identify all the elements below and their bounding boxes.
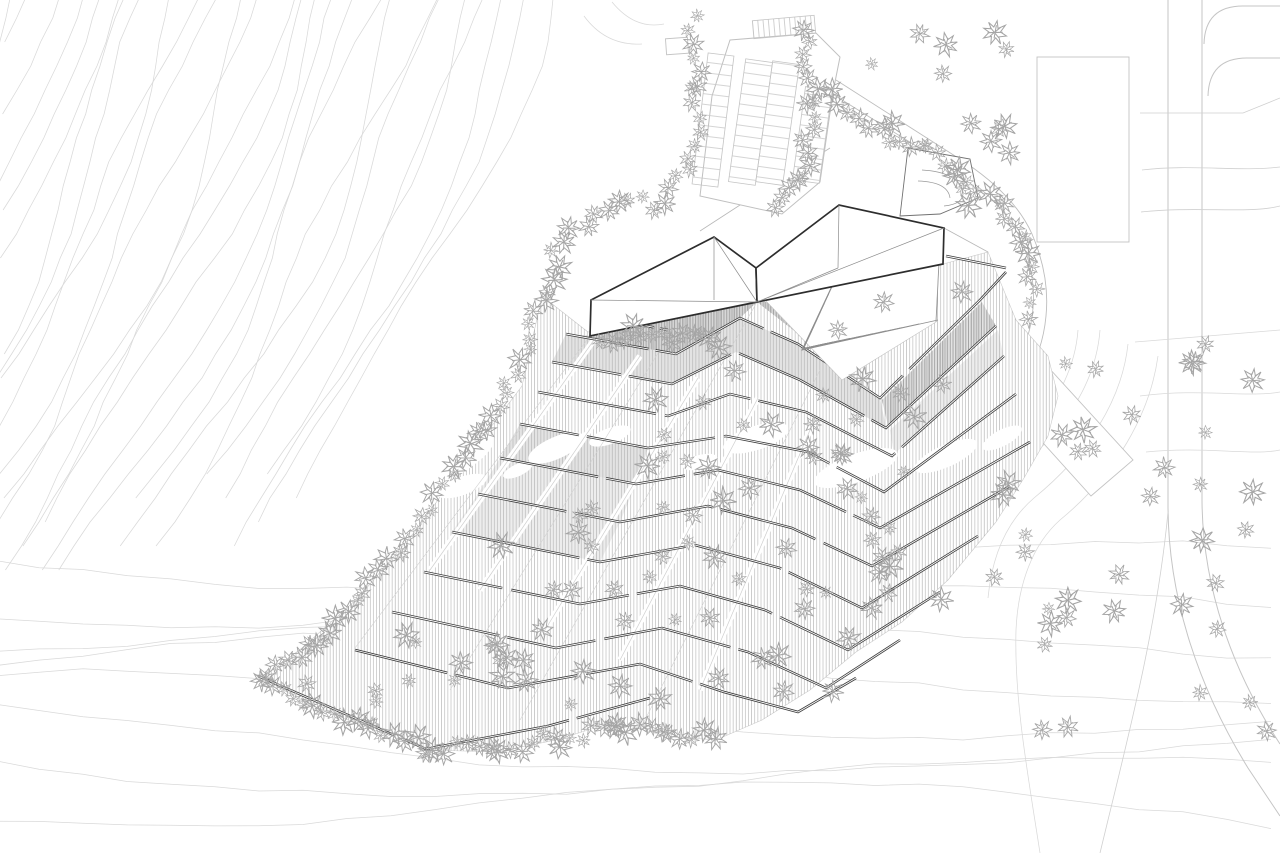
road-corner [1204, 6, 1280, 44]
tree-icon [1238, 478, 1265, 505]
tree-icon [1054, 713, 1082, 741]
tree-icon [981, 19, 1008, 46]
contour-line [0, 0, 258, 522]
tree-icon [930, 29, 961, 60]
tree-icon [1106, 561, 1132, 587]
tree-icon [636, 190, 650, 204]
road-spur [1141, 206, 1280, 212]
tree-icon [1209, 620, 1226, 637]
contour-line [120, 0, 391, 546]
tree-icon [1198, 425, 1213, 440]
contour-line [42, 0, 333, 570]
tree-icon [1237, 521, 1255, 539]
contour-line [136, 0, 384, 498]
tree-icon [680, 23, 695, 38]
contour-line [207, 0, 441, 474]
site-plan-drawing [0, 0, 1280, 853]
contour-arc [1140, 392, 1280, 396]
tree-icon [1141, 487, 1160, 506]
roof-underlay-line [944, 228, 988, 252]
contour-line [3, 0, 101, 210]
tree-icon [864, 56, 880, 72]
tree-icon [1026, 278, 1048, 300]
contour-line [156, 0, 440, 546]
tree-icon [541, 267, 568, 294]
tree-icon [1119, 402, 1144, 427]
parking-lot-layer [692, 15, 840, 214]
tree-icon [1189, 682, 1210, 703]
contour-line [267, 0, 484, 474]
tree-icon [1099, 596, 1129, 626]
tree-icon [1018, 527, 1033, 542]
tree-icon [1204, 571, 1227, 594]
tree-icon [497, 376, 511, 390]
tree-icon [1013, 540, 1037, 564]
tree-icon [576, 214, 601, 239]
tree-icon [818, 677, 847, 706]
road-spur [1142, 167, 1280, 170]
tree-icon [1192, 476, 1208, 492]
site-plan-canvas [0, 0, 1280, 853]
contour-line [0, 0, 219, 474]
contour-arc [612, 2, 664, 25]
contour-line [226, 0, 466, 498]
tree-icon [544, 251, 576, 283]
tree-icon [1150, 453, 1178, 481]
tree-icon [1190, 527, 1215, 552]
tree-icon [994, 138, 1024, 168]
tree-icon [933, 64, 952, 83]
contour-line [0, 0, 120, 258]
tree-icon [907, 21, 933, 47]
contour-line [1, 0, 170, 378]
road-bend-line [1100, 512, 1168, 853]
tree-icon [1055, 587, 1081, 613]
contour-line [45, 0, 316, 522]
context-building-footprint [1037, 57, 1129, 242]
tree-icon [1084, 358, 1106, 380]
contour-arc [1135, 330, 1280, 342]
tree-icon [959, 112, 983, 136]
contour-line [3, 0, 61, 114]
contour-arc [1146, 450, 1280, 452]
contour-line [0, 757, 1271, 796]
contour-line [4, 0, 242, 498]
tree-icon [668, 168, 684, 184]
contour-line [59, 0, 354, 570]
contour-line [0, 0, 141, 378]
road-corner [1208, 58, 1280, 96]
tree-icon [1240, 368, 1265, 393]
tree-icon [689, 7, 707, 25]
tree-icon [1021, 294, 1038, 311]
tree-icon [1179, 347, 1210, 378]
tree-icon [1036, 636, 1054, 654]
terraced-landscape-layer [258, 252, 1058, 752]
road-edge [1168, 0, 1280, 816]
tree-icon [520, 316, 536, 332]
tree-icon [1032, 719, 1054, 741]
road-spur [1140, 98, 1280, 113]
tree-icon [1017, 267, 1037, 287]
tree-icon [990, 111, 1020, 141]
tree-icon [1057, 354, 1075, 372]
contour-line [4, 0, 125, 354]
tree-icon [979, 129, 1004, 154]
contour-line [0, 782, 1271, 829]
tree-icon [984, 567, 1004, 587]
tree-icon [1042, 602, 1055, 615]
